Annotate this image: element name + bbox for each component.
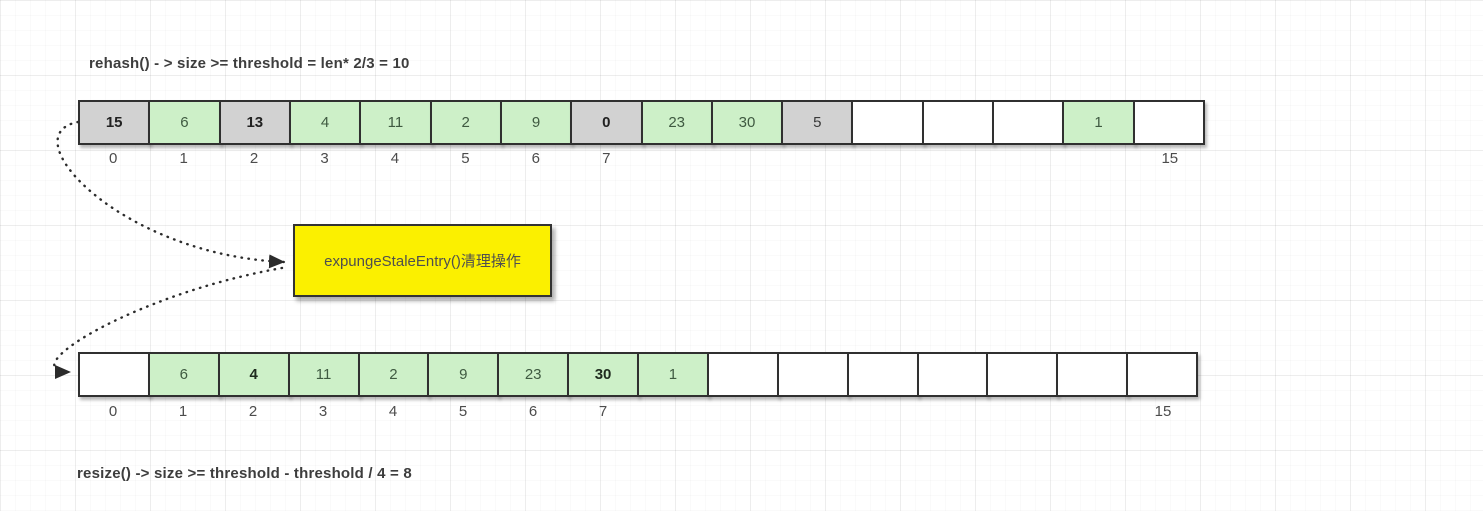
index-label-2: 2 — [218, 403, 288, 420]
array-cell-8: 1 — [637, 352, 709, 397]
array-cell-8: 23 — [641, 100, 713, 145]
index-row-bottom: 0123456715 — [78, 403, 1198, 423]
array-cell-6: 23 — [497, 352, 569, 397]
array-cell-4: 11 — [359, 100, 431, 145]
array-cell-4: 2 — [358, 352, 430, 397]
index-label-7: 7 — [568, 403, 638, 420]
array-cell-13 — [992, 100, 1064, 145]
array-cell-12 — [917, 352, 989, 397]
array-cell-15 — [1126, 352, 1198, 397]
array-cell-10: 5 — [781, 100, 853, 145]
index-label-7: 7 — [571, 150, 641, 167]
index-label-0: 0 — [78, 403, 148, 420]
index-row-top: 0123456715 — [78, 150, 1205, 170]
array-cell-3: 4 — [289, 100, 361, 145]
array-cell-3: 11 — [288, 352, 360, 397]
index-label-1: 1 — [148, 150, 218, 167]
array-cell-0 — [78, 352, 150, 397]
array-cell-7: 0 — [570, 100, 642, 145]
index-label-5: 5 — [430, 150, 500, 167]
array-cell-1: 6 — [148, 100, 220, 145]
array-cell-10 — [777, 352, 849, 397]
array-cell-0: 15 — [78, 100, 150, 145]
array-cell-2: 13 — [219, 100, 291, 145]
index-label-4: 4 — [358, 403, 428, 420]
array-cell-1: 6 — [148, 352, 220, 397]
array-cell-9: 30 — [711, 100, 783, 145]
hash-table-after-expunge: 64112923301 — [78, 352, 1198, 397]
index-label-5: 5 — [428, 403, 498, 420]
index-label-4: 4 — [360, 150, 430, 167]
index-label-6: 6 — [498, 403, 568, 420]
index-label-0: 0 — [78, 150, 148, 167]
array-cell-2: 4 — [218, 352, 290, 397]
array-cell-12 — [922, 100, 994, 145]
index-label-3: 3 — [289, 150, 359, 167]
expunge-stale-entry-box: expungeStaleEntry()清理操作 — [293, 224, 552, 297]
rehash-formula-label: rehash() - > size >= threshold = len* 2/… — [89, 55, 410, 72]
array-cell-13 — [986, 352, 1058, 397]
array-cell-15 — [1133, 100, 1205, 145]
resize-formula-label: resize() -> size >= threshold - threshol… — [77, 465, 412, 482]
array-cell-14 — [1056, 352, 1128, 397]
index-label-6: 6 — [501, 150, 571, 167]
index-label-15: 15 — [1128, 403, 1198, 420]
array-cell-5: 9 — [427, 352, 499, 397]
connector-layer — [0, 0, 1483, 511]
array-cell-14: 1 — [1062, 100, 1134, 145]
hash-table-before-rehash: 15613411290233051 — [78, 100, 1205, 145]
diagram-canvas: rehash() - > size >= threshold = len* 2/… — [0, 0, 1483, 511]
array-cell-11 — [851, 100, 923, 145]
index-label-2: 2 — [219, 150, 289, 167]
index-label-15: 15 — [1135, 150, 1205, 167]
array-cell-11 — [847, 352, 919, 397]
array-cell-9 — [707, 352, 779, 397]
array-cell-5: 2 — [430, 100, 502, 145]
array-cell-7: 30 — [567, 352, 639, 397]
index-label-3: 3 — [288, 403, 358, 420]
array-cell-6: 9 — [500, 100, 572, 145]
index-label-1: 1 — [148, 403, 218, 420]
